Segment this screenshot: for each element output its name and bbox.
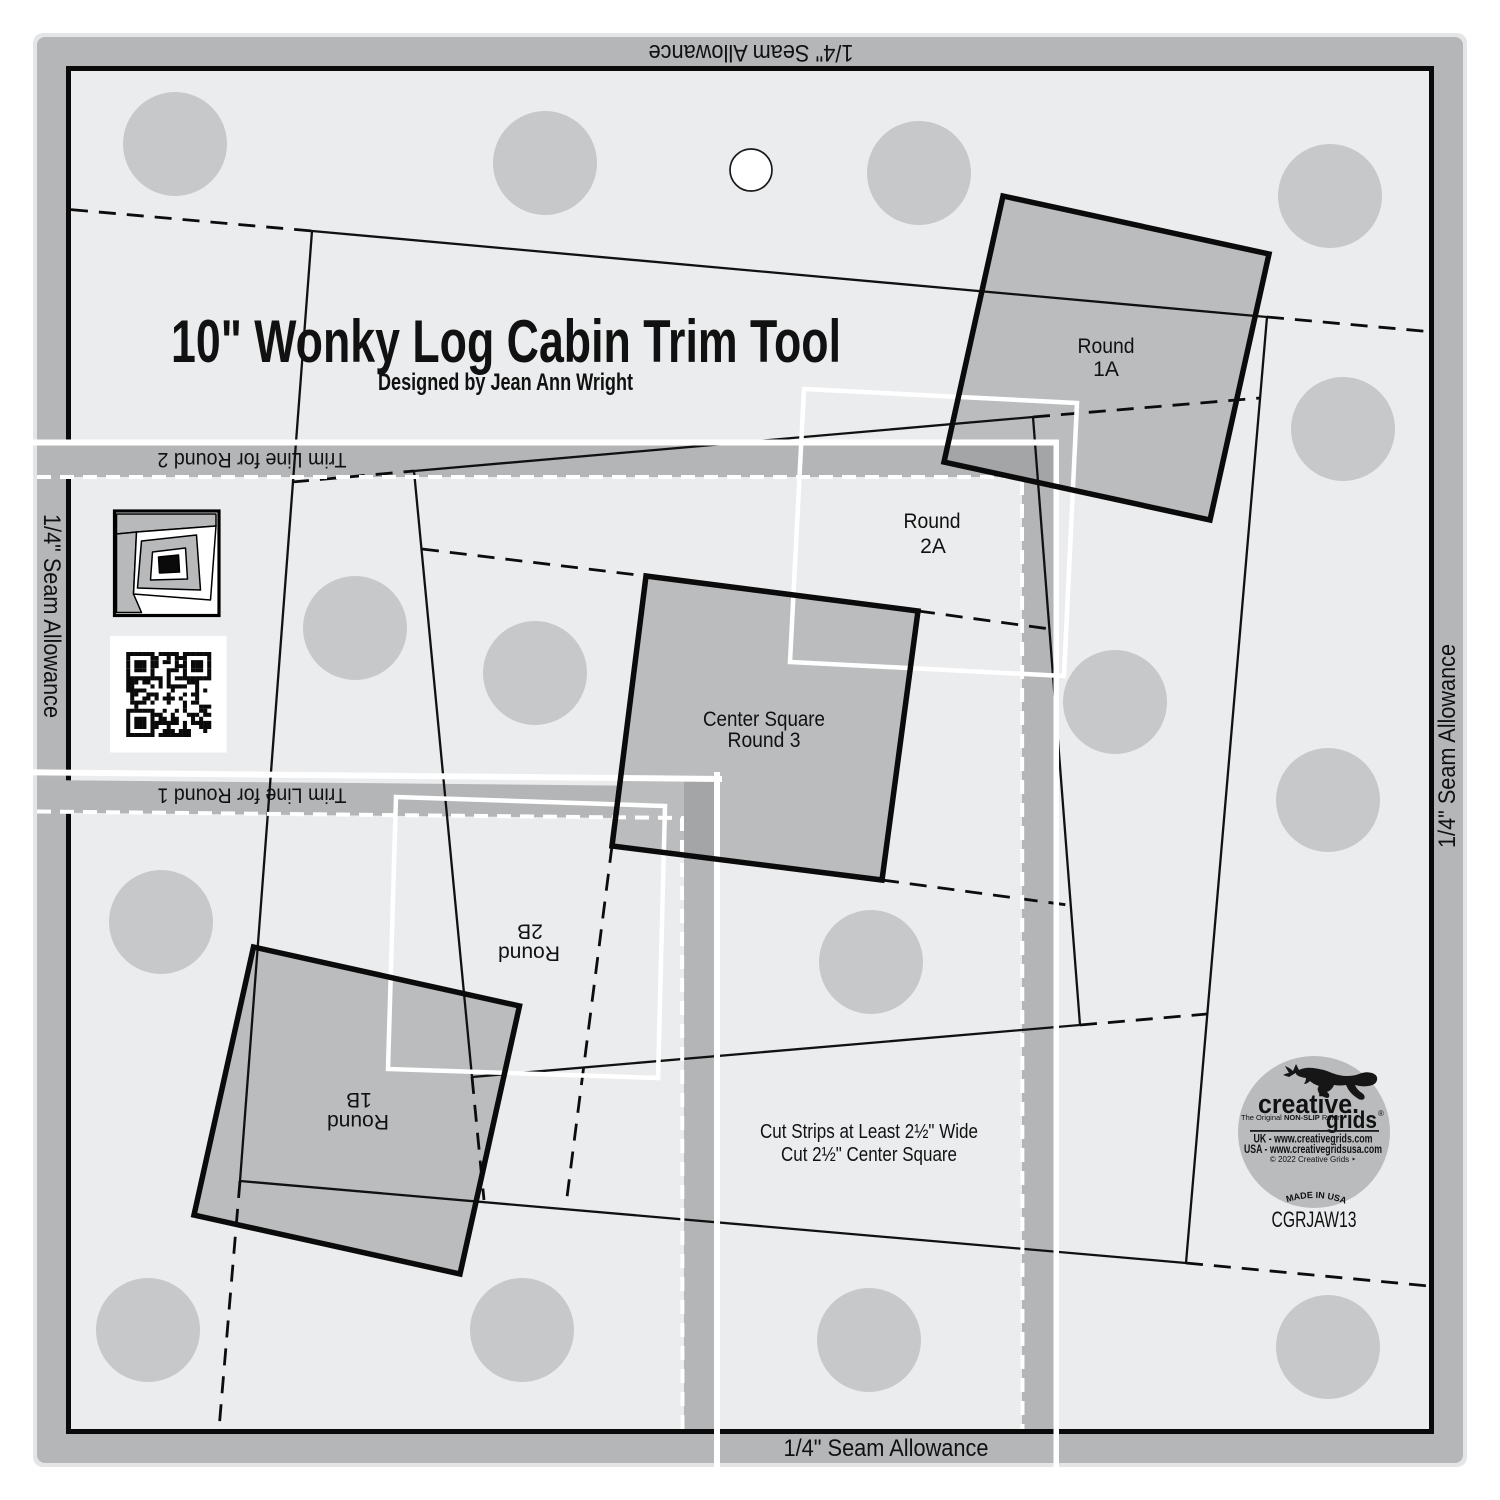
svg-text:USA - www.creativegridsusa.com: USA - www.creativegridsusa.com <box>1244 1142 1382 1156</box>
svg-text:1/4" Seam Allowance: 1/4" Seam Allowance <box>1434 644 1461 848</box>
svg-text:2B: 2B <box>517 920 543 943</box>
svg-text:1A: 1A <box>1093 358 1119 381</box>
svg-text:Cut Strips at Least 2½" Wide: Cut Strips at Least 2½" Wide <box>760 1120 978 1143</box>
svg-text:Center Square: Center Square <box>703 708 825 731</box>
svg-text:10" Wonky Log Cabin Trim Tool: 10" Wonky Log Cabin Trim Tool <box>171 308 841 375</box>
svg-text:1/4" Seam Allowance: 1/4" Seam Allowance <box>649 39 854 66</box>
svg-text:© 2022 Creative Grids ‣: © 2022 Creative Grids ‣ <box>1270 1155 1356 1164</box>
svg-text:Cut 2½" Center Square: Cut 2½" Center Square <box>781 1143 957 1166</box>
svg-text:1/4" Seam Allowance: 1/4" Seam Allowance <box>38 514 65 718</box>
svg-text:1B: 1B <box>346 1088 372 1111</box>
svg-text:Round: Round <box>904 510 961 533</box>
svg-text:Designed by Jean Ann Wright: Designed by Jean Ann Wright <box>378 369 633 396</box>
svg-text:Round: Round <box>327 1110 389 1133</box>
svg-text:Trim Line for Round 2: Trim Line for Round 2 <box>158 448 347 471</box>
svg-text:®: ® <box>1378 1109 1384 1118</box>
svg-text:CGRJAW13: CGRJAW13 <box>1272 1207 1357 1232</box>
svg-text:1/4" Seam Allowance: 1/4" Seam Allowance <box>784 1435 989 1462</box>
svg-text:Round: Round <box>1078 335 1135 358</box>
svg-text:Round: Round <box>498 942 560 965</box>
svg-text:Trim Line for Round 1: Trim Line for Round 1 <box>158 784 347 807</box>
svg-text:Round 3: Round 3 <box>728 729 801 752</box>
svg-text:The Original NON-SLIP Ruler: The Original NON-SLIP Ruler <box>1241 1113 1340 1122</box>
svg-text:2A: 2A <box>920 535 946 558</box>
